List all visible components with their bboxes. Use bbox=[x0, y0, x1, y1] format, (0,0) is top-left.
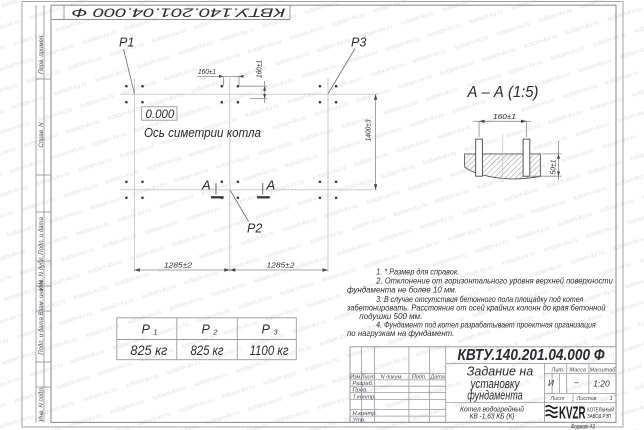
svg-text:825 кг: 825 кг bbox=[191, 342, 224, 358]
svg-text:Справ. N: Справ. N bbox=[39, 122, 45, 148]
svg-text:Формат А3: Формат А3 bbox=[571, 424, 595, 430]
svg-text:N докум.: N докум. bbox=[381, 375, 403, 381]
svg-text:Р1: Р1 bbox=[119, 36, 134, 50]
svg-text:А: А bbox=[201, 178, 211, 193]
svg-text:160±1: 160±1 bbox=[493, 112, 516, 121]
svg-text:ЗАВОД РЭП: ЗАВОД РЭП bbox=[587, 414, 611, 420]
svg-text:фундамента не более 10 мм.: фундамента не более 10 мм. bbox=[347, 284, 457, 294]
svg-text:1285±2: 1285±2 bbox=[267, 263, 295, 270]
svg-text:160±1: 160±1 bbox=[257, 60, 264, 78]
svg-text:Дата: Дата bbox=[429, 375, 445, 381]
svg-text:КОТЕЛЬНЫЙ: КОТЕЛЬНЫЙ bbox=[587, 406, 614, 414]
svg-text:Н.контр.: Н.контр. bbox=[353, 411, 378, 417]
svg-text:Листов: Листов bbox=[575, 396, 596, 402]
svg-text:Подп. и дата: Подп. и дата bbox=[39, 317, 45, 355]
svg-text:И: И bbox=[548, 379, 554, 388]
svg-text:Подп.: Подп. bbox=[412, 375, 427, 381]
svg-text:Лист: Лист bbox=[360, 375, 376, 381]
svg-text:Подп. и дата: Подп. и дата bbox=[39, 217, 45, 255]
svg-text:1: 1 bbox=[609, 396, 612, 402]
svg-text:Масса: Масса bbox=[570, 367, 586, 373]
svg-text:1100 кг: 1100 кг bbox=[250, 342, 289, 358]
svg-text:КВ -1,63 КБ (К): КВ -1,63 КБ (К) bbox=[470, 411, 515, 420]
svg-text:Лист: Лист bbox=[549, 396, 565, 402]
svg-text:1400±3: 1400±3 bbox=[366, 119, 373, 141]
svg-text:Р3: Р3 bbox=[351, 36, 366, 50]
svg-text:Пров.: Пров. bbox=[353, 388, 368, 394]
svg-text:КВТУ.140.201.04.000 Ф: КВТУ.140.201.04.000 Ф bbox=[72, 6, 286, 18]
svg-text:1:20: 1:20 bbox=[593, 379, 610, 389]
svg-text:А: А bbox=[266, 178, 276, 193]
svg-text:КВТУ.140.201.04.000 Ф: КВТУ.140.201.04.000 Ф bbox=[458, 347, 605, 364]
svg-text:160±1: 160±1 bbox=[198, 69, 216, 76]
svg-text:Взам. инв. N: Взам. инв. N bbox=[39, 280, 45, 316]
svg-text:50±1: 50±1 bbox=[551, 159, 558, 174]
svg-text:–: – bbox=[573, 378, 579, 387]
svg-text:Разраб.: Разраб. bbox=[353, 381, 374, 387]
svg-text:825 кг: 825 кг bbox=[130, 342, 167, 358]
svg-text:Масштаб: Масштаб bbox=[590, 367, 617, 373]
svg-text:фундамента: фундамента bbox=[467, 389, 522, 403]
svg-text:Утв.: Утв. bbox=[352, 417, 366, 423]
svg-text:Лит.: Лит. bbox=[551, 367, 565, 373]
svg-text:KVZR: KVZR bbox=[559, 403, 586, 423]
svg-text:Т.контр.: Т.контр. bbox=[353, 394, 376, 400]
svg-text:Инв. N подл.: Инв. N подл. bbox=[39, 386, 45, 421]
svg-text:по нагрузкам на фундамент.: по нагрузкам на фундамент. bbox=[347, 328, 454, 338]
svg-text:0.000: 0.000 bbox=[146, 109, 175, 121]
svg-text:А – А (1:5): А – А (1:5) bbox=[467, 84, 539, 101]
svg-text:Перв. примен.: Перв. примен. bbox=[39, 34, 45, 74]
svg-text:1285±2: 1285±2 bbox=[164, 263, 192, 270]
svg-text:Р2: Р2 bbox=[247, 222, 262, 236]
svg-text:Ось симетрии котла: Ось симетрии котла bbox=[144, 126, 261, 140]
